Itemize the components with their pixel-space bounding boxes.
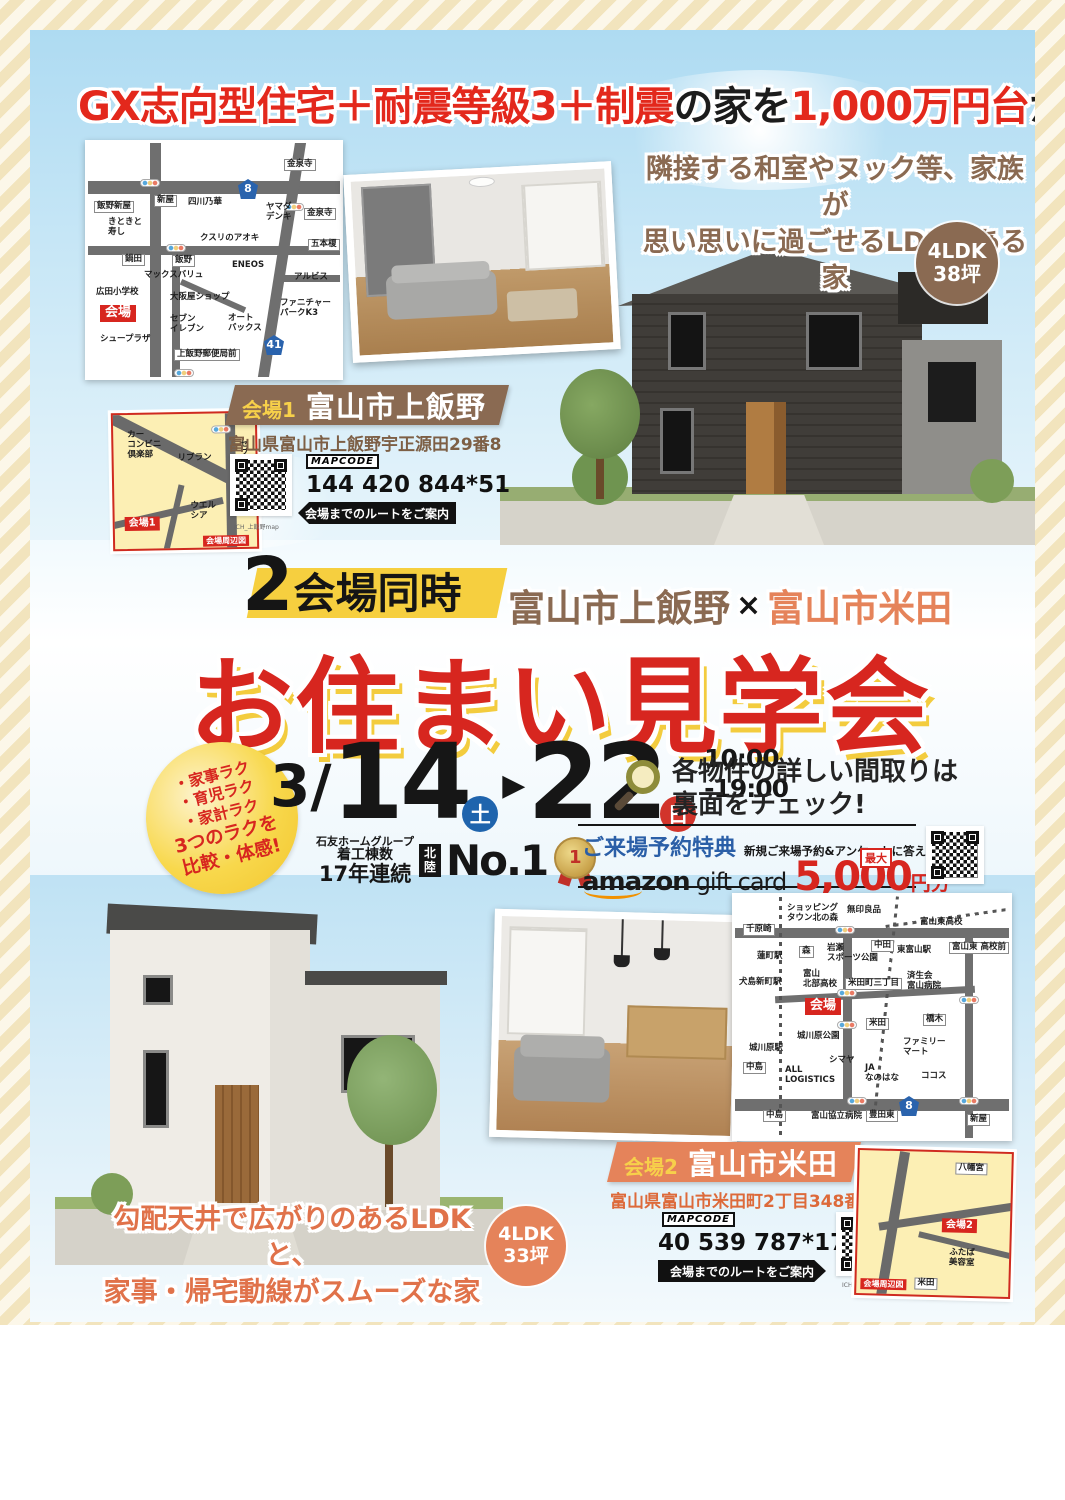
map-label: 豊田東 — [866, 1110, 898, 1122]
amazon-smile-icon — [584, 889, 642, 899]
venue2-mapcode: 40 539 787*17 — [658, 1230, 846, 1256]
window — [806, 312, 862, 370]
date-start: 14 — [332, 730, 469, 834]
entrance-door — [746, 402, 786, 494]
map-label: 会場2 — [942, 1218, 977, 1232]
venue1-address: 富山県富山市上飯野宇正源田29番8 — [228, 430, 502, 455]
roof-right — [305, 971, 447, 985]
venue2-mapcode-logo: MAPCODE — [662, 1212, 735, 1227]
map-label: 無印良品 — [847, 906, 881, 916]
map-label: 金泉寺 — [284, 159, 316, 171]
map-label: ENEOS — [232, 261, 264, 271]
map-label: セブン イレブン — [170, 315, 204, 335]
map-label: ヤマダ デンキ — [266, 203, 292, 223]
map-label: 橋木 — [923, 1014, 946, 1026]
map-label: 城川原駅 — [749, 1044, 783, 1054]
map-label: 中田 — [871, 940, 894, 952]
map-label: クスリのアオキ — [200, 234, 259, 244]
map-label: 新屋 — [154, 195, 177, 207]
map-labels: 八幡宮会場2ふたば 美容室米田会場周辺図 — [856, 1150, 1012, 1297]
flyer-page: GX志向型住宅＋耐震等級3＋制震の家を1,000万円台から! — [0, 0, 1065, 1500]
map-label: 8 — [238, 179, 258, 199]
headline-red2: 1,000万円台 — [791, 84, 1030, 130]
date-month: 3/ — [270, 730, 332, 820]
tree — [347, 1035, 437, 1145]
map-label: 東富山駅 — [897, 946, 931, 956]
map-label: シマヤ — [829, 1056, 855, 1066]
window — [143, 1050, 169, 1128]
bush — [970, 459, 1014, 503]
reward-max-badge: 最大 — [860, 848, 892, 868]
giftcard-label: gift card — [696, 868, 787, 896]
map-label: カー コンビニ 倶楽部 — [127, 430, 162, 460]
venue1-qr-caption: ICH_上飯野map — [234, 522, 279, 531]
map-label: 米田町三丁目 — [845, 978, 902, 990]
venue2-badge-ldk: 4LDK — [498, 1224, 554, 1246]
window — [668, 312, 706, 370]
map-label: 八幡宮 — [955, 1163, 987, 1176]
map-label: 富山東 高校前 — [949, 942, 1009, 954]
map-label: 米田 — [914, 1278, 937, 1290]
tree — [560, 369, 640, 459]
no1-region: 北陸 — [419, 844, 441, 876]
map-label: JA なのはな — [865, 1064, 899, 1084]
map-label: 富山 北部高校 — [803, 970, 837, 990]
map-label: ココス — [921, 1072, 947, 1082]
map-label: 富山東高校 — [920, 918, 963, 928]
venue1-badge-tsubo: 38坪 — [933, 263, 981, 286]
map-labels: 千原崎ショッピング タウン北の森無印良品富山東高校蓮町駅森岩瀬 スポーツ公園中田… — [735, 896, 1009, 1138]
venue2-route-button: 会場までのルートをご案内 — [658, 1260, 826, 1282]
map-label: 金泉寺 — [304, 208, 336, 220]
map-label: 大阪屋ショップ — [170, 293, 230, 303]
map-label: 会場 — [805, 998, 841, 1015]
pendant-light — [654, 948, 670, 960]
banner-number: 2 — [242, 552, 294, 619]
headline-red1: GX志向型住宅＋耐震等級3＋制震 — [78, 84, 674, 130]
map-label: シュープラザ — [100, 335, 151, 345]
map-label: 会場周辺図 — [860, 1278, 906, 1290]
venue1-name: 富山市上飯野 — [306, 384, 486, 426]
map-label: 四川乃華 — [188, 198, 222, 208]
venue1-badge-ldk: 4LDK — [928, 240, 987, 263]
venue1-tag: 会場1 — [242, 394, 296, 423]
venue2-room-badge: 4LDK 33坪 — [486, 1206, 566, 1286]
map-label: 飯野新屋 — [94, 201, 134, 213]
rug — [507, 288, 578, 322]
map-label: 鍋田 — [122, 254, 145, 266]
map-label: 中島 — [763, 1110, 786, 1122]
map-label: 城川原公園 — [797, 1032, 840, 1042]
map-label: 五本榎 — [308, 239, 340, 251]
map-label: 飯野 — [172, 255, 195, 267]
entrance-door — [215, 1085, 259, 1203]
headline-black1: の家を — [674, 84, 791, 130]
map-label: 蓮町駅 — [757, 952, 783, 962]
venue1-room-badge: 4LDK 38坪 — [916, 222, 998, 304]
headline-black2: から! — [1029, 84, 1035, 130]
house2-interior-photo — [489, 909, 743, 1143]
map-label: 会場1 — [125, 516, 160, 530]
pendant-light — [614, 955, 630, 967]
no1-line1: 着工棟数 — [337, 848, 393, 863]
house-body-left — [110, 930, 310, 1210]
interior-window — [521, 181, 605, 271]
venue2-tag: 会場2 — [624, 1151, 678, 1180]
map-label: 犬島新町駅 — [739, 978, 782, 988]
banner-x: × — [736, 588, 761, 623]
flyer-body: GX志向型住宅＋耐震等級3＋制震の家を1,000万円台から! — [30, 30, 1035, 1322]
map-label: 広田小学校 — [96, 288, 139, 298]
venue2-catchcopy: 勾配天井で広がりのあるLDKと、 家事・帰宅動線がスムーズな家 — [92, 1202, 492, 1311]
venue1-qr-code — [230, 454, 292, 516]
map-label: ALL LOGISTICS — [785, 1066, 835, 1086]
venue1-banner: 会場1 富山市上飯野 — [225, 385, 509, 425]
map-label: 千原崎 — [743, 924, 775, 936]
map-label: 中島 — [743, 1062, 766, 1074]
venue1-access-map: 金泉寺飯野新屋新屋四川乃華ヤマダ デンキ金泉寺きときと 寿しクスリのアオキ五本榎… — [85, 140, 343, 380]
map-labels: 金泉寺飯野新屋新屋四川乃華ヤマダ デンキ金泉寺きときと 寿しクスリのアオキ五本榎… — [88, 143, 340, 377]
map-label: 森 — [799, 946, 814, 958]
map-label: オート バックス — [228, 314, 262, 334]
map-label: マックスバリュ — [144, 271, 203, 281]
map-label: 富山協立病院 — [811, 1112, 862, 1122]
visit-reward: ご来場予約特典 新規ご来場予約&アンケートに答えて amazon gift ca… — [578, 824, 916, 888]
map-label: ファニチャー パークK3 — [280, 299, 331, 319]
map-label: ファミリー マート — [903, 1038, 946, 1058]
venue2-address: 富山県富山市米田町2丁目348番32 — [610, 1187, 885, 1212]
sofa-back — [520, 1035, 605, 1059]
venue2-badge-tsubo: 33坪 — [503, 1246, 548, 1268]
map-label: 41 — [264, 335, 284, 355]
reservation-qr-code — [926, 826, 984, 884]
map-label: ショッピング タウン北の森 — [787, 904, 838, 924]
floorplan-note: 各物件の詳しい間取りは 裏面をチェック! — [672, 756, 958, 821]
map-label: 米田 — [866, 1018, 889, 1030]
window — [660, 408, 694, 474]
map-label: 8 — [899, 1096, 919, 1116]
venue2-name: 富山市米田 — [688, 1141, 838, 1183]
window — [143, 975, 173, 1005]
venue2-vicinity-map: 八幡宮会場2ふたば 美容室米田会場周辺図 — [854, 1148, 1014, 1299]
venue2-access-map: 千原崎ショッピング タウン北の森無印良品富山東高校蓮町駅森岩瀬 スポーツ公園中田… — [732, 893, 1012, 1141]
venue2-banner: 会場2 富山市米田 — [607, 1142, 861, 1182]
magnifier-icon — [626, 760, 660, 794]
map-label: きときと 寿し — [108, 218, 142, 238]
event-banner: 2 会場同時 — [242, 552, 462, 619]
interior-window — [507, 926, 588, 1036]
map-label: 済生会 富山病院 — [907, 972, 941, 992]
map-label: アルビス — [294, 273, 328, 283]
footer: 石友ホームグループ インカムハウス富山店 お電話は FreeDial 0120-… — [0, 1325, 1065, 1500]
headline: GX志向型住宅＋耐震等級3＋制震の家を1,000万円台から! — [78, 74, 1008, 132]
date-arrow: ▶ — [502, 768, 525, 803]
venue1-mapcode-logo: MAPCODE — [306, 454, 379, 469]
house1-interior-photo — [343, 161, 620, 363]
map-label: 会場 — [100, 305, 136, 322]
map-label: ウエル シア — [190, 501, 216, 521]
venue1-mapcode: 144 420 844*51 — [306, 472, 510, 498]
date-start-day: 土 — [462, 796, 498, 832]
map-label: 上飯野郵便局前 — [174, 349, 240, 361]
map-label: リブラン — [178, 454, 212, 464]
kitchen-counter — [626, 1005, 727, 1060]
map-label: ふたば 美容室 — [949, 1248, 975, 1268]
garage-window — [928, 362, 976, 422]
amazon-logo: amazon — [582, 867, 690, 897]
venue1-route-button: 会場までのルートをご案内 — [298, 502, 456, 524]
banner-suffix: 会場同時 — [294, 573, 462, 619]
map-label: 新屋 — [967, 1114, 990, 1126]
